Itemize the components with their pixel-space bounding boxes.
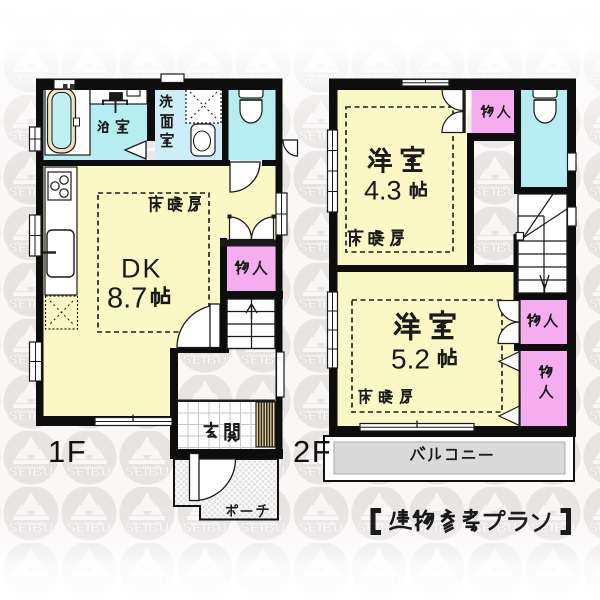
svg-text:4.3: 4.3 <box>364 176 402 206</box>
svg-text:1F: 1F <box>48 434 87 469</box>
svg-text:5.2: 5.2 <box>391 344 430 375</box>
svg-text:DK: DK <box>121 254 163 284</box>
svg-text:2F: 2F <box>293 434 332 469</box>
svg-text:8.7: 8.7 <box>107 283 147 315</box>
